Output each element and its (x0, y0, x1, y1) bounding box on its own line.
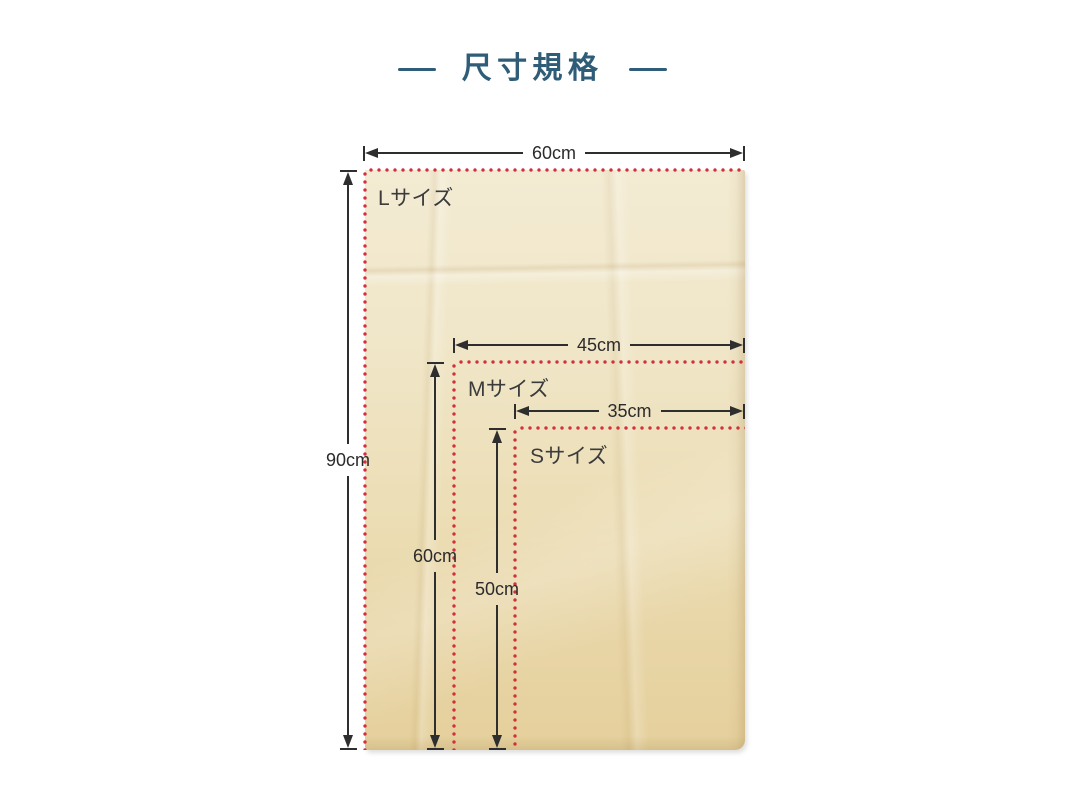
dimension-line (347, 476, 349, 735)
arrow-up-icon (343, 172, 353, 185)
arrow-right-icon (730, 406, 743, 416)
s-size-outline-top (516, 426, 745, 430)
dimension-end-tick (489, 748, 506, 750)
arrow-down-icon (492, 735, 502, 748)
s-size-label: Sサイズ (530, 440, 608, 470)
m-height-value: 60cm (413, 540, 457, 572)
dimension-line (496, 605, 498, 735)
dimension-line (347, 185, 349, 444)
m-width-value: 45cm (568, 336, 630, 354)
l-size-label: Lサイズ (378, 182, 454, 212)
arrow-left-icon (516, 406, 529, 416)
dimension-end-tick (743, 146, 745, 161)
s-width-value: 35cm (599, 402, 661, 420)
page: 尺寸規格 Lサイズ Mサイズ Sサイズ 60cm (0, 0, 1065, 800)
m-size-label: Mサイズ (468, 373, 550, 403)
l-height-dimension: 90cm (325, 170, 371, 750)
arrow-down-icon (430, 735, 440, 748)
l-width-dimension: 60cm (363, 145, 745, 161)
dimension-line (661, 410, 731, 412)
dimension-line (529, 410, 599, 412)
arrow-up-icon (492, 430, 502, 443)
s-height-value: 50cm (475, 573, 519, 605)
arrow-up-icon (430, 364, 440, 377)
dimension-line (378, 152, 523, 154)
arrow-right-icon (730, 148, 743, 158)
dimension-end-tick (743, 404, 745, 419)
arrow-left-icon (455, 340, 468, 350)
m-width-dimension: 45cm (453, 337, 745, 353)
l-width-value: 60cm (523, 144, 585, 162)
m-height-dimension: 60cm (412, 362, 458, 750)
dimension-end-tick (427, 748, 444, 750)
m-size-outline-top (455, 360, 745, 364)
dimension-line (496, 443, 498, 573)
l-size-outline-top (365, 168, 745, 172)
dimension-line (468, 344, 568, 346)
dimension-line (434, 572, 436, 735)
arrow-right-icon (730, 340, 743, 350)
arrow-down-icon (343, 735, 353, 748)
dimension-line (630, 344, 730, 346)
dimension-line (585, 152, 730, 154)
s-width-dimension: 35cm (514, 403, 745, 419)
arrow-left-icon (365, 148, 378, 158)
s-height-dimension: 50cm (474, 428, 520, 750)
dimension-end-tick (340, 748, 357, 750)
dimension-line (434, 377, 436, 540)
l-height-value: 90cm (326, 444, 370, 476)
size-diagram: Lサイズ Mサイズ Sサイズ 60cm 45cm 3 (0, 0, 1065, 800)
dimension-end-tick (743, 338, 745, 353)
